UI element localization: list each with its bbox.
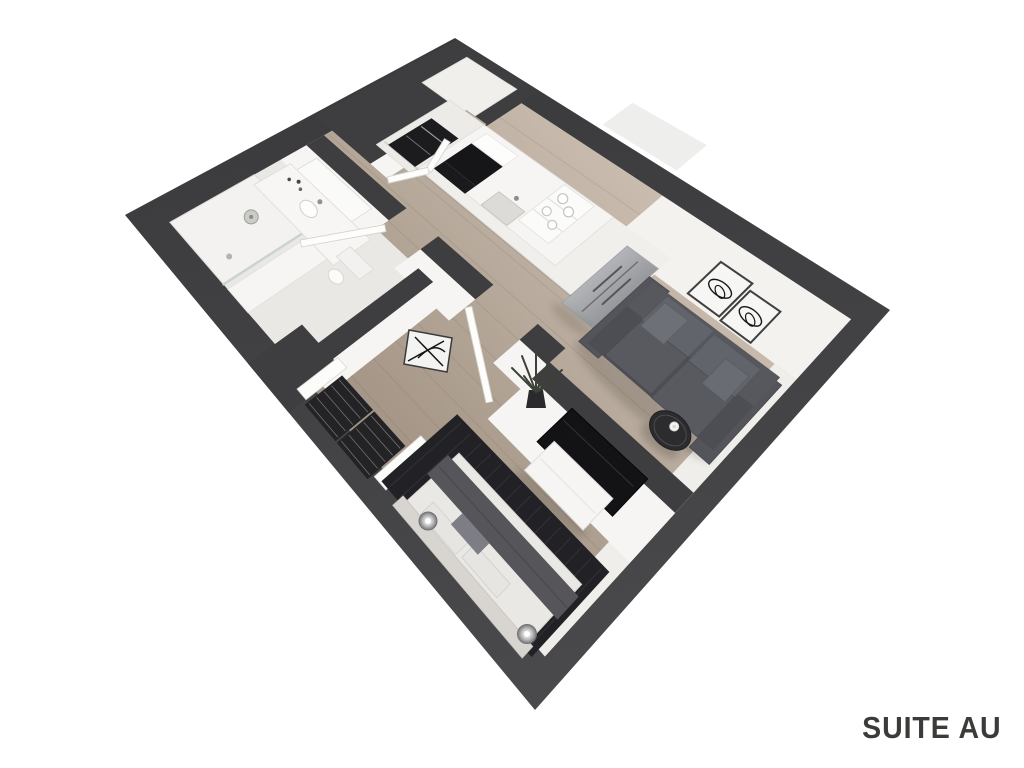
plate [548,220,557,229]
toiletry [297,180,301,184]
suite-title: SUITE AU [863,710,1002,746]
faucet [317,199,322,204]
lamp-glow [425,518,431,524]
cup-center [672,425,676,429]
kitchen-faucet [514,196,519,201]
plate [564,207,574,217]
floorplan-svg [0,0,1024,768]
toiletry [287,178,291,182]
shower-drain [226,254,232,260]
plate [558,194,568,204]
floorplan-render: SUITE AU [0,0,1024,768]
toiletry [299,187,303,191]
plate [542,207,551,216]
shower-head-center [249,215,253,219]
lamp-glow [524,631,530,637]
